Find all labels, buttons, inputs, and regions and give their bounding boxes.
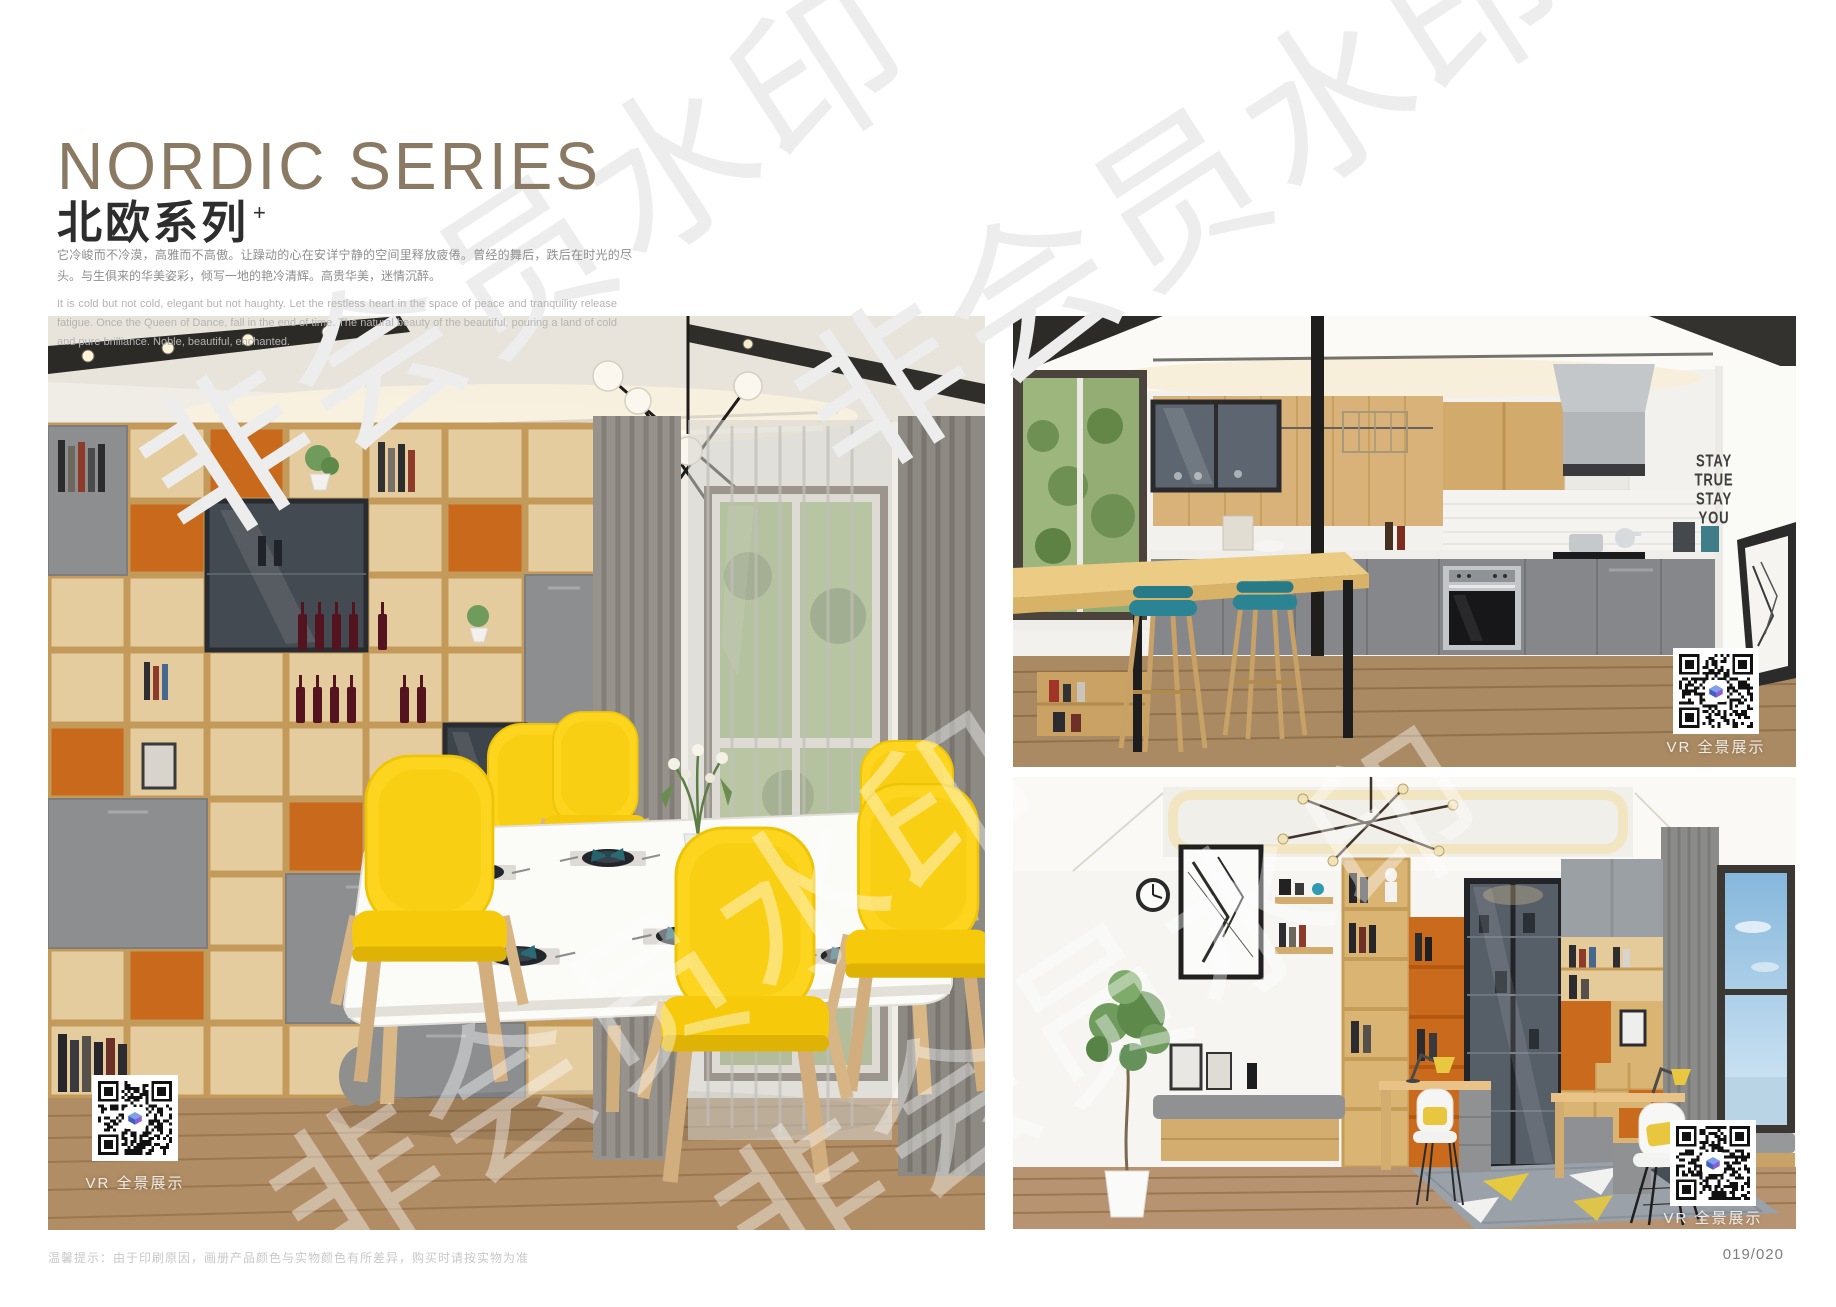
qr-code	[92, 1075, 178, 1161]
qr-logo-cube-icon	[124, 1107, 146, 1129]
wall-decal-line: TRUE	[1690, 471, 1738, 490]
kitchen-photo: STAY TRUE STAY YOU VR 全景展示	[1013, 316, 1796, 767]
wall-decal-line: STAY	[1690, 490, 1738, 509]
glass-upper-cabinet	[1153, 402, 1279, 490]
series-title-plus: +	[253, 200, 269, 225]
study-room-photo: VR 全景展示	[1013, 777, 1796, 1229]
cooktop	[1553, 552, 1645, 559]
series-title-zh-text: 北欧系列	[57, 197, 249, 248]
description-en: It is cold but not cold, elegant but not…	[57, 295, 617, 352]
catalog-page: NORDIC SERIES 北欧系列+ 它冷峻而不冷漠，高雅而不高傲。让躁动的心…	[0, 0, 1836, 1307]
vr-panorama-label: VR 全景展示	[75, 1172, 195, 1193]
bar-shelf	[1037, 672, 1149, 736]
dining-room-photo: VR 全景展示	[48, 316, 985, 1230]
range-hood	[1553, 364, 1655, 476]
built-in-oven	[1443, 566, 1521, 650]
glass-partition-post	[1311, 316, 1324, 656]
vr-panorama-label: VR 全景展示	[1656, 736, 1776, 757]
window	[1717, 865, 1795, 1133]
qr-code	[1670, 1120, 1756, 1206]
wall-decal-text: STAY TRUE STAY YOU	[1690, 452, 1738, 528]
series-title-zh: 北欧系列+	[57, 200, 269, 245]
abstract-art-frame	[1181, 847, 1261, 977]
qr-code	[1673, 648, 1759, 734]
series-title-en: NORDIC SERIES	[57, 133, 601, 200]
vr-panorama-label: VR 全景展示	[1653, 1207, 1773, 1228]
wall-decal-line: STAY	[1690, 452, 1738, 471]
wall-decal-line: YOU	[1690, 509, 1738, 528]
wall-clock	[1138, 880, 1168, 910]
header: NORDIC SERIES 北欧系列+ 它冷峻而不冷漠，高雅而不高傲。让躁动的心…	[0, 0, 1000, 340]
dining-room-image	[48, 316, 985, 1230]
description-zh: 它冷峻而不冷漠，高雅而不高傲。让躁动的心在安详宁静的空间里释放疲倦。曾经的舞后，…	[57, 245, 632, 287]
qr-logo-cube-icon	[1702, 1152, 1724, 1174]
page-number: 019/020	[1723, 1246, 1784, 1263]
qr-logo-cube-icon	[1705, 680, 1727, 702]
photo-frame	[143, 744, 175, 788]
print-disclaimer: 温馨提示：由于印刷原因，画册产品颜色与实物颜色有所差异，购买时请按实物为准	[48, 1249, 529, 1266]
